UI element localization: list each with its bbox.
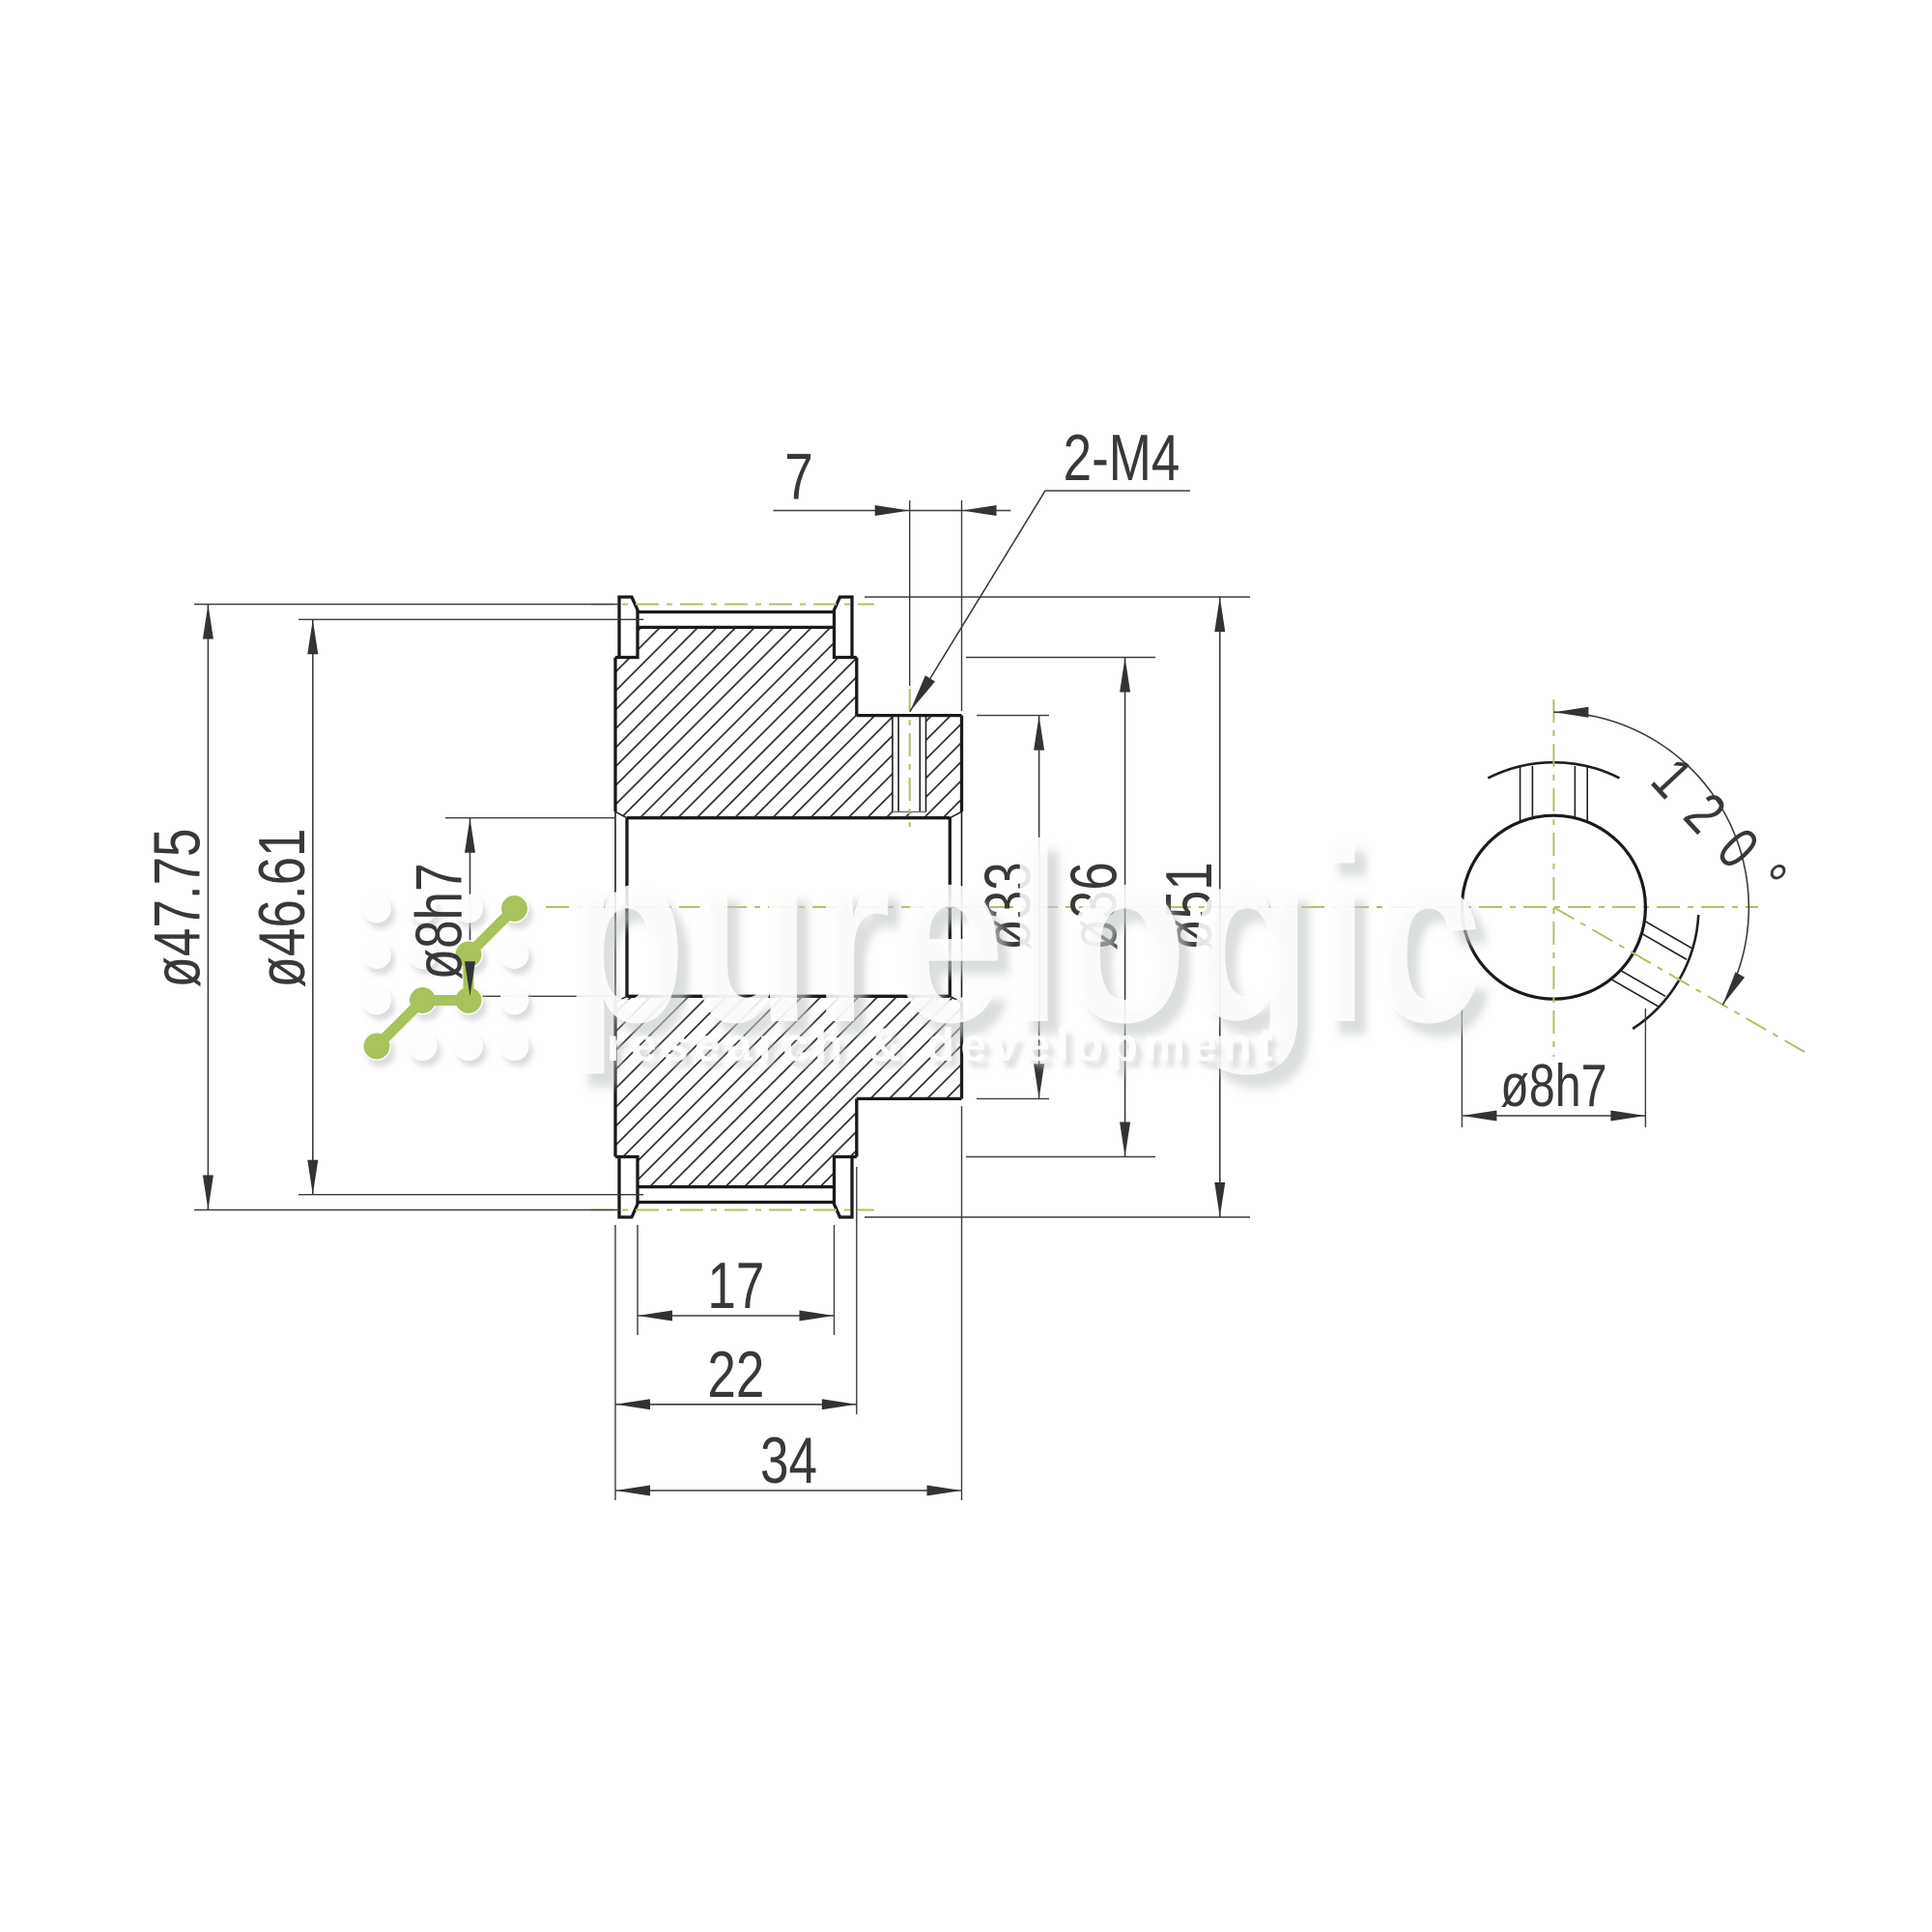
svg-text:ø8h7: ø8h7	[402, 864, 475, 980]
svg-text:ø46.61: ø46.61	[244, 828, 318, 987]
svg-text:22: 22	[707, 1338, 764, 1411]
svg-text:ø8h7: ø8h7	[1500, 1052, 1606, 1119]
svg-text:2-M4: 2-M4	[1064, 421, 1180, 495]
svg-text:7: 7	[784, 440, 813, 513]
svg-text:17: 17	[707, 1249, 764, 1322]
svg-text:research & development: research & development	[607, 1020, 1279, 1071]
svg-text:34: 34	[760, 1424, 817, 1497]
svg-text:ø47.75: ø47.75	[140, 828, 213, 987]
